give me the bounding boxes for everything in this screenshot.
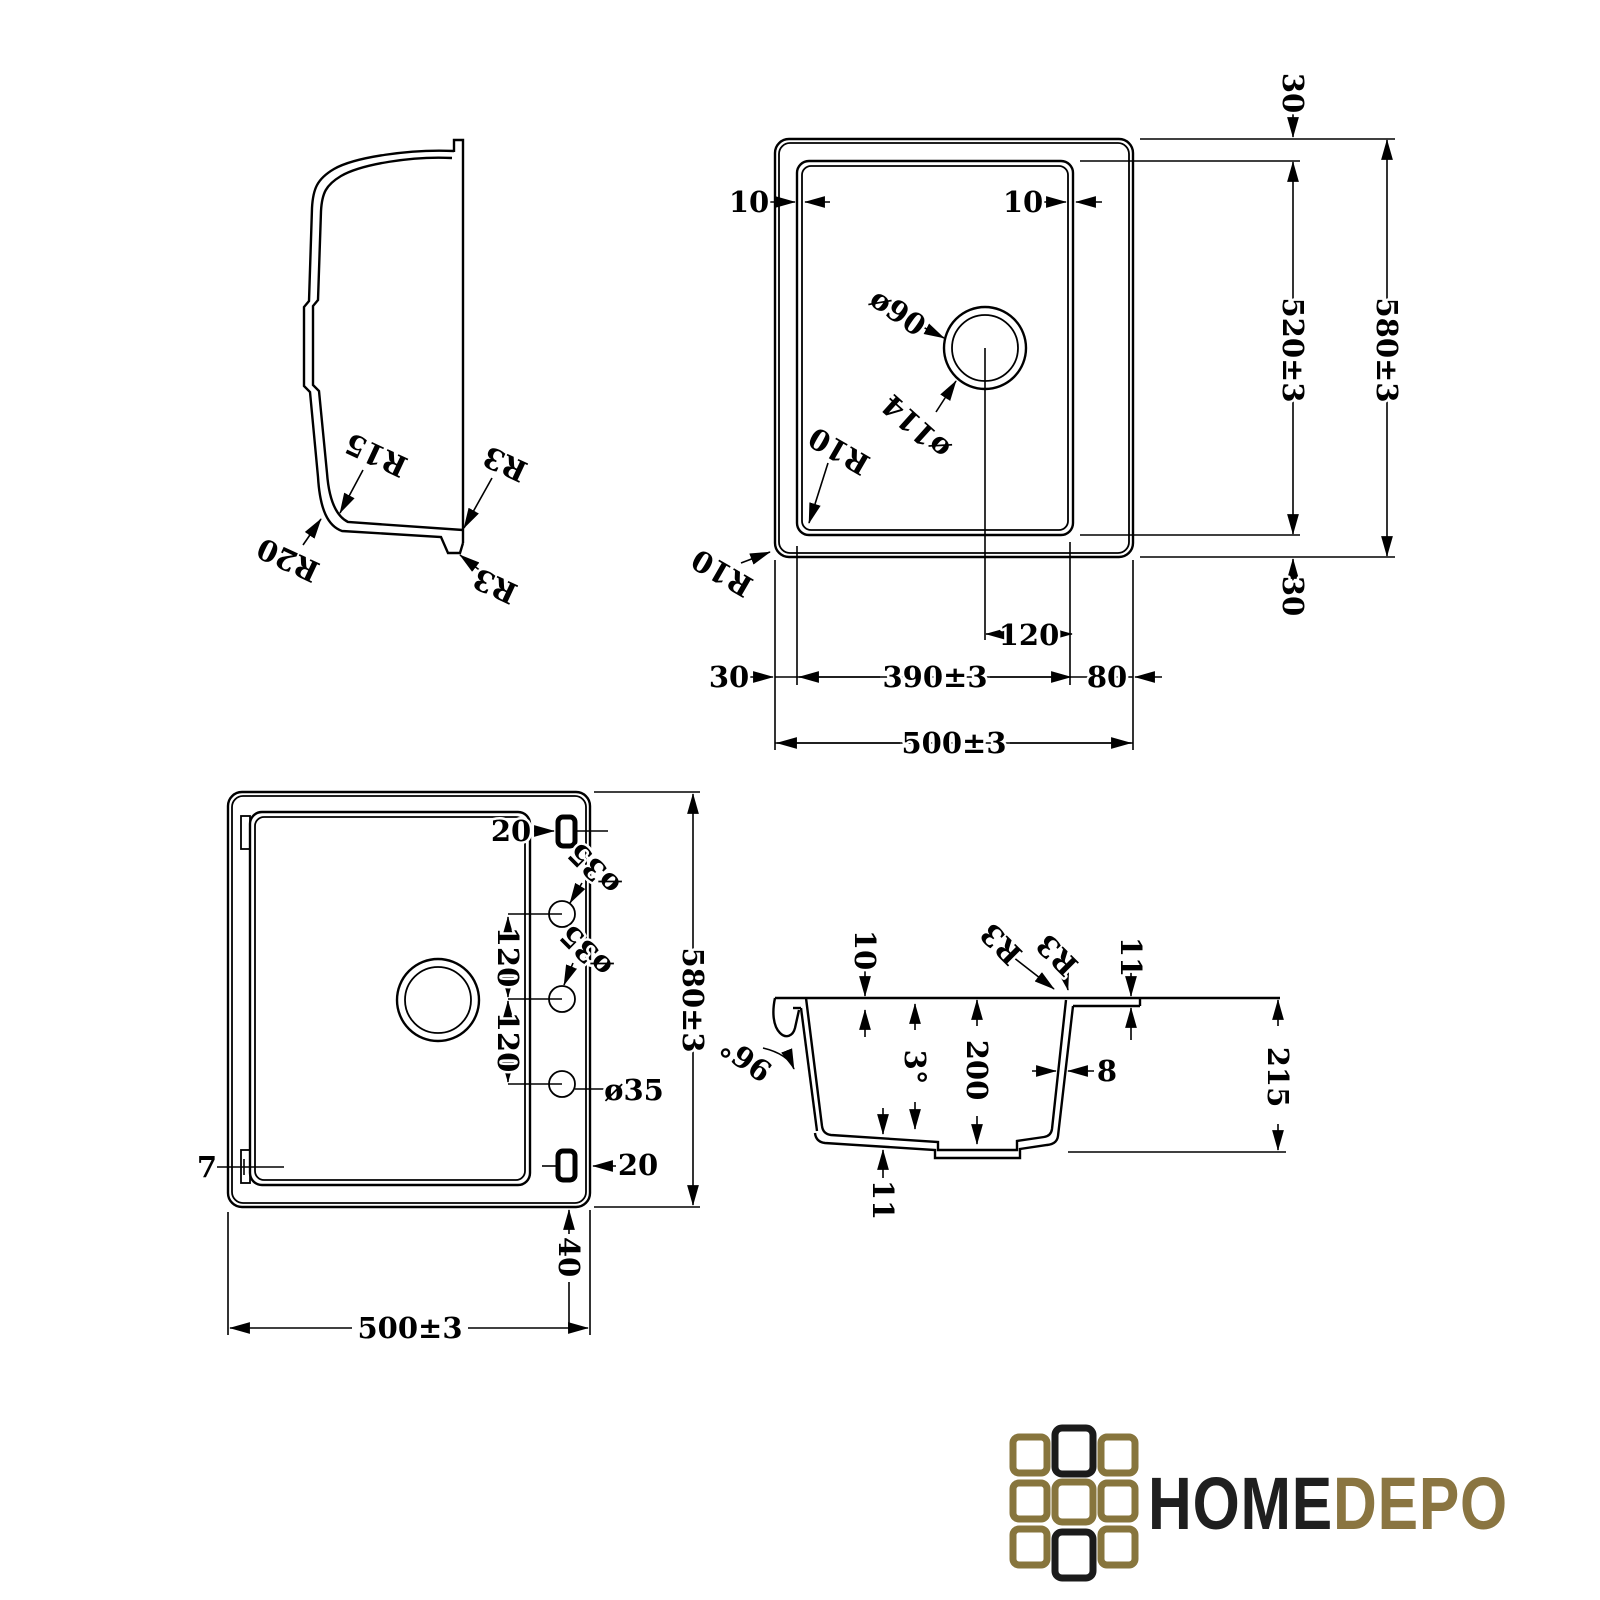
bowl-bottom-inner bbox=[822, 1000, 1066, 1150]
logo-grid-icon bbox=[1013, 1428, 1135, 1578]
dim-11-top-label: 11 bbox=[1114, 937, 1148, 977]
dim-120-b-label: 120 bbox=[491, 1012, 525, 1073]
dim-520-label: 520±3 bbox=[1276, 297, 1310, 402]
leader-dia35-a bbox=[570, 883, 582, 903]
logo-square bbox=[1101, 1437, 1135, 1473]
dim-580-label: 580±3 bbox=[1370, 297, 1404, 402]
r10-inner-label: R10 bbox=[803, 420, 876, 482]
leader-r15 bbox=[340, 470, 363, 513]
bowl-inner-rect bbox=[802, 166, 1068, 530]
profile-outer-contour bbox=[304, 151, 463, 553]
dim-580-label: 580±3 bbox=[676, 947, 710, 1052]
angle-3-label: 3° bbox=[898, 1050, 932, 1085]
dim-11-bottom-label: 11 bbox=[866, 1180, 900, 1220]
logo-square bbox=[1055, 1532, 1093, 1578]
r10-outer-label: R10 bbox=[686, 542, 759, 604]
logo-square bbox=[1055, 1482, 1093, 1522]
leader-r10-inner bbox=[809, 463, 828, 523]
bowl-rect bbox=[250, 812, 530, 1185]
dim-120-label: 120 bbox=[999, 618, 1060, 652]
dim-30-bottom-label: 30 bbox=[1276, 576, 1310, 616]
dim-20-top-label: 20 bbox=[491, 814, 531, 848]
dim-500-label: 500±3 bbox=[901, 726, 1006, 760]
dia-90-label: ø90 bbox=[864, 281, 932, 343]
side-profile-view: R15 R20 R3 R3 bbox=[252, 140, 533, 611]
dim-10-right-label: 10 bbox=[1003, 185, 1043, 219]
dim-215-label: 215 bbox=[1261, 1047, 1295, 1108]
logo-square bbox=[1013, 1483, 1047, 1519]
dim-7-label: 7 bbox=[197, 1150, 217, 1184]
logo-square bbox=[1013, 1529, 1047, 1565]
bowl-bottom-outer bbox=[815, 1006, 1073, 1158]
angle-96-label: 96° bbox=[714, 1029, 778, 1088]
drain-inner-circle bbox=[405, 967, 471, 1033]
leader-dia35-b bbox=[564, 963, 573, 985]
dim-120-a-label: 120 bbox=[491, 927, 525, 988]
brand-logo: HOMEDEPO bbox=[1013, 1428, 1508, 1578]
dim-30-top-label: 30 bbox=[1276, 73, 1310, 113]
r15-label: R15 bbox=[340, 426, 413, 484]
r3-lower-label: R3 bbox=[468, 561, 523, 611]
fixing-slot-bottom bbox=[558, 1151, 575, 1180]
leader-r20 bbox=[303, 519, 321, 545]
r3-upper-label: R3 bbox=[478, 439, 533, 489]
logo-wordmark: HOMEDEPO bbox=[1148, 1462, 1508, 1545]
sink-rim-rect bbox=[779, 143, 1129, 553]
clip-notch-top bbox=[241, 816, 250, 849]
leader-dia114 bbox=[936, 381, 956, 412]
r3-b-label: R3 bbox=[1029, 927, 1084, 982]
dim-80-label: 80 bbox=[1087, 660, 1127, 694]
logo-word-depo: DEPO bbox=[1333, 1462, 1508, 1545]
section-view: 10 R3 R3 11 96° 3° 200 8 11 215 bbox=[714, 916, 1295, 1220]
top-view: 30 580±3 520±3 30 10 10 ø90 ø114 R10 R10… bbox=[686, 73, 1404, 760]
r20-label: R20 bbox=[252, 531, 325, 589]
logo-square bbox=[1013, 1437, 1047, 1473]
dim-200-label: 200 bbox=[960, 1040, 994, 1101]
dia-35-c-label: ø35 bbox=[604, 1073, 664, 1107]
leader-r3-upper bbox=[464, 478, 492, 528]
dim-40-label: 40 bbox=[552, 1237, 586, 1277]
dim-8-label: 8 bbox=[1097, 1054, 1117, 1088]
dim-390-label: 390±3 bbox=[882, 660, 987, 694]
drawing-canvas: R15 R20 R3 R3 bbox=[0, 0, 1600, 1600]
profile-top-tab bbox=[454, 140, 463, 155]
logo-word-home: HOME bbox=[1148, 1462, 1333, 1545]
dim-10-left-label: 10 bbox=[729, 185, 769, 219]
technical-drawing-page: R15 R20 R3 R3 bbox=[0, 0, 1600, 1600]
bottom-view: 20 ø35 ø35 ø35 120 120 580±3 7 20 40 500… bbox=[197, 792, 710, 1345]
leader-dia90 bbox=[921, 326, 944, 338]
logo-square bbox=[1101, 1483, 1135, 1519]
leader-r10-outer bbox=[741, 552, 770, 563]
logo-square bbox=[1055, 1428, 1093, 1474]
dim-10-label: 10 bbox=[848, 930, 882, 970]
bowl-inner-rect bbox=[255, 817, 525, 1180]
logo-square bbox=[1101, 1529, 1135, 1565]
drain-outer-circle bbox=[397, 959, 479, 1041]
dim-500-label: 500±3 bbox=[357, 1311, 462, 1345]
dim-20-bottom-label: 20 bbox=[618, 1148, 658, 1182]
dim-30-left-label: 30 bbox=[709, 660, 749, 694]
fixing-slot-top bbox=[558, 817, 575, 846]
left-lip bbox=[773, 998, 799, 1036]
